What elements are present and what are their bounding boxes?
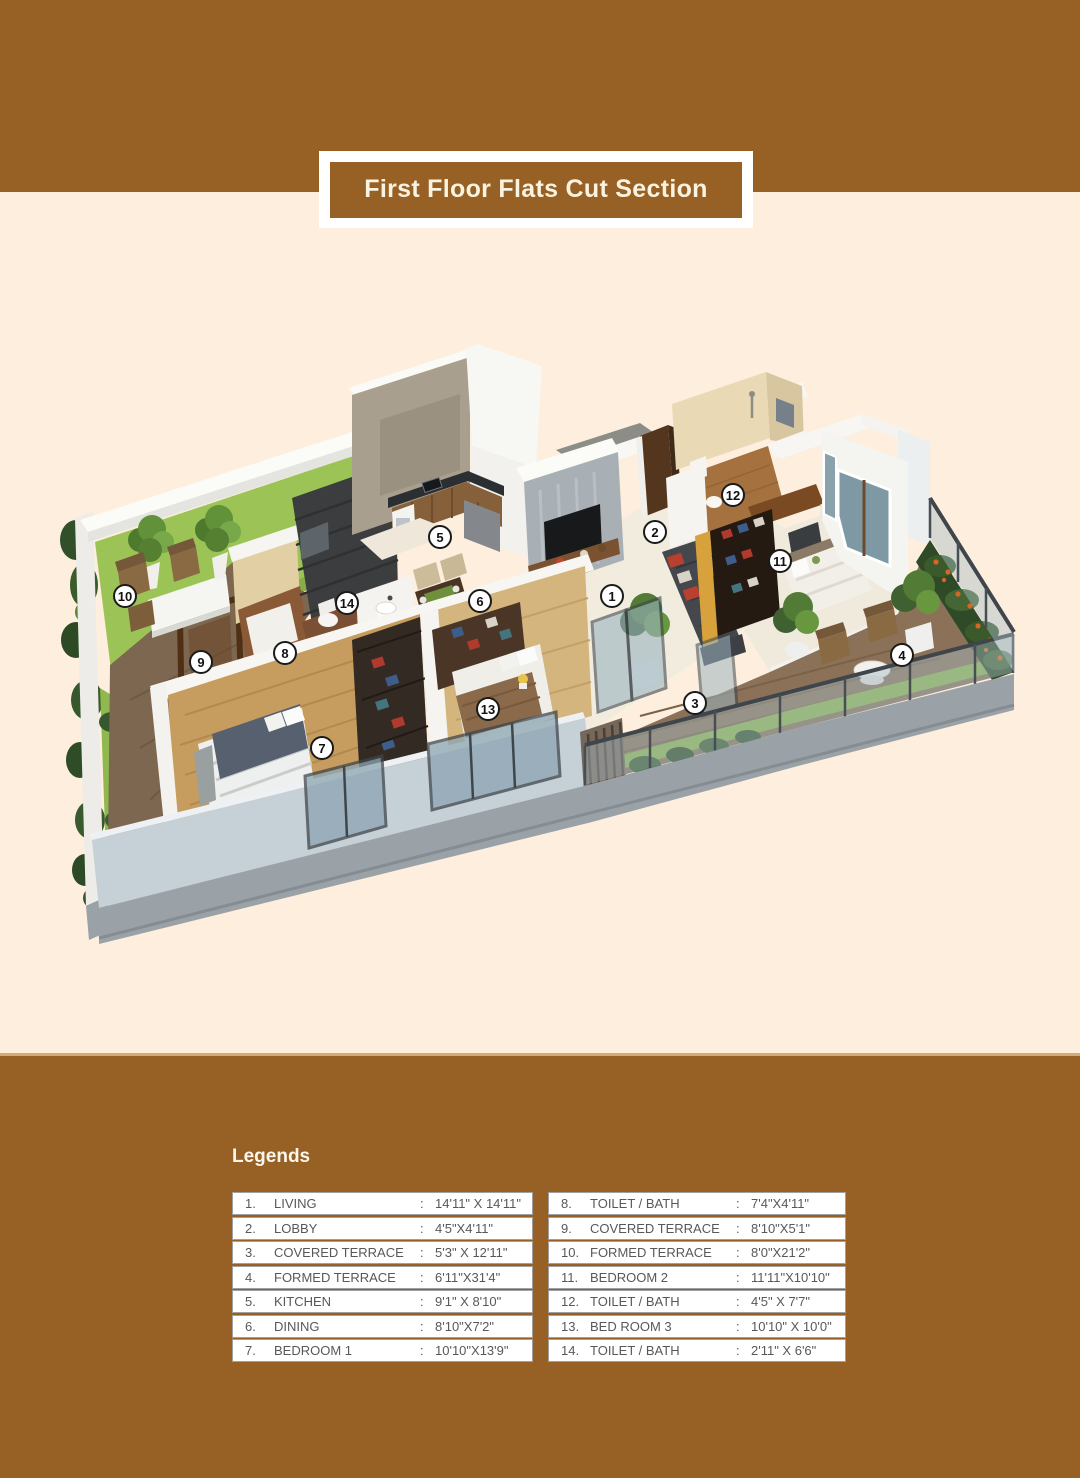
- entrance-landing: [556, 423, 660, 464]
- legend-row: 3.COVERED TERRACE:5'3" X 12'11": [232, 1241, 533, 1264]
- tv-wall: [516, 438, 624, 592]
- legends-heading: Legends: [232, 1146, 310, 1168]
- room-marker-6: 6: [468, 589, 492, 613]
- base-fascia: [99, 674, 1014, 944]
- bed-room-3: [420, 566, 592, 799]
- legend-row: 11.BEDROOM 2:11'11"X10'10": [548, 1266, 846, 1289]
- bottom-band: [0, 1053, 1080, 1478]
- legend-row: 6.DINING:8'10"X7'2": [232, 1315, 533, 1338]
- toilet-bath-12: [666, 372, 812, 548]
- living-glass-doors: [592, 598, 737, 717]
- legend-row: 13.BED ROOM 3:10'10" X 10'0": [548, 1315, 846, 1338]
- page-title: First Floor Flats Cut Section: [364, 175, 707, 204]
- room-marker-2: 2: [643, 520, 667, 544]
- room-marker-14: 14: [335, 591, 359, 615]
- legend-row: 12.TOILET / BATH:4'5" X 7'7": [548, 1290, 846, 1313]
- terrace-plants-and-chairs: [115, 505, 284, 632]
- entrance-door: [636, 425, 682, 520]
- legend-row: 9.COVERED TERRACE:8'10"X5'1": [548, 1217, 846, 1240]
- legend-table-left: 1.LIVING:14'11" X 14'11" 2.LOBBY:4'5"X4'…: [232, 1192, 533, 1364]
- room-marker-13: 13: [476, 697, 500, 721]
- toilet-bath-14: [292, 462, 398, 664]
- terraces-3-4: [580, 540, 1014, 792]
- living-floor: [330, 468, 785, 752]
- legend-table-right: 8.TOILET / BATH:7'4"X4'11" 9.COVERED TER…: [548, 1192, 846, 1364]
- legend-row: 7.BEDROOM 1:10'10"X13'9": [232, 1339, 533, 1362]
- room-marker-3: 3: [683, 691, 707, 715]
- legend-row: 8.TOILET / BATH:7'4"X4'11": [548, 1192, 846, 1215]
- title-banner-inner: First Floor Flats Cut Section: [330, 162, 742, 218]
- room-marker-10: 10: [113, 584, 137, 608]
- brochure-page: First Floor Flats Cut Section: [0, 0, 1080, 1478]
- front-wall: [90, 712, 592, 908]
- covered-terrace-9: [108, 558, 320, 852]
- title-banner: First Floor Flats Cut Section: [319, 151, 753, 228]
- room-marker-7: 7: [310, 736, 334, 760]
- toilet-bath-8: [228, 524, 310, 674]
- legend-row: 4.FORMED TERRACE:6'11"X31'4": [232, 1266, 533, 1289]
- room-marker-1: 1: [600, 584, 624, 608]
- legend-row: 1.LIVING:14'11" X 14'11": [232, 1192, 533, 1215]
- room-marker-9: 9: [189, 650, 213, 674]
- room-marker-8: 8: [273, 641, 297, 665]
- room-marker-12: 12: [721, 483, 745, 507]
- room-marker-4: 4: [890, 643, 914, 667]
- bench: [552, 628, 584, 662]
- bedroom-2: [700, 412, 930, 680]
- legend-row: 2.LOBBY:4'5"X4'11": [232, 1217, 533, 1240]
- room-marker-11: 11: [768, 549, 792, 573]
- room-marker-5: 5: [428, 525, 452, 549]
- left-garden-bushes: [60, 520, 111, 910]
- formed-terrace-10: [95, 455, 372, 856]
- legend-row: 14.TOILET / BATH:2'11" X 6'6": [548, 1339, 846, 1362]
- washbasin: [356, 575, 416, 668]
- legend-row: 5.KITCHEN:9'1" X 8'10": [232, 1290, 533, 1313]
- legend-row: 10.FORMED TERRACE:8'0"X21'2": [548, 1241, 846, 1264]
